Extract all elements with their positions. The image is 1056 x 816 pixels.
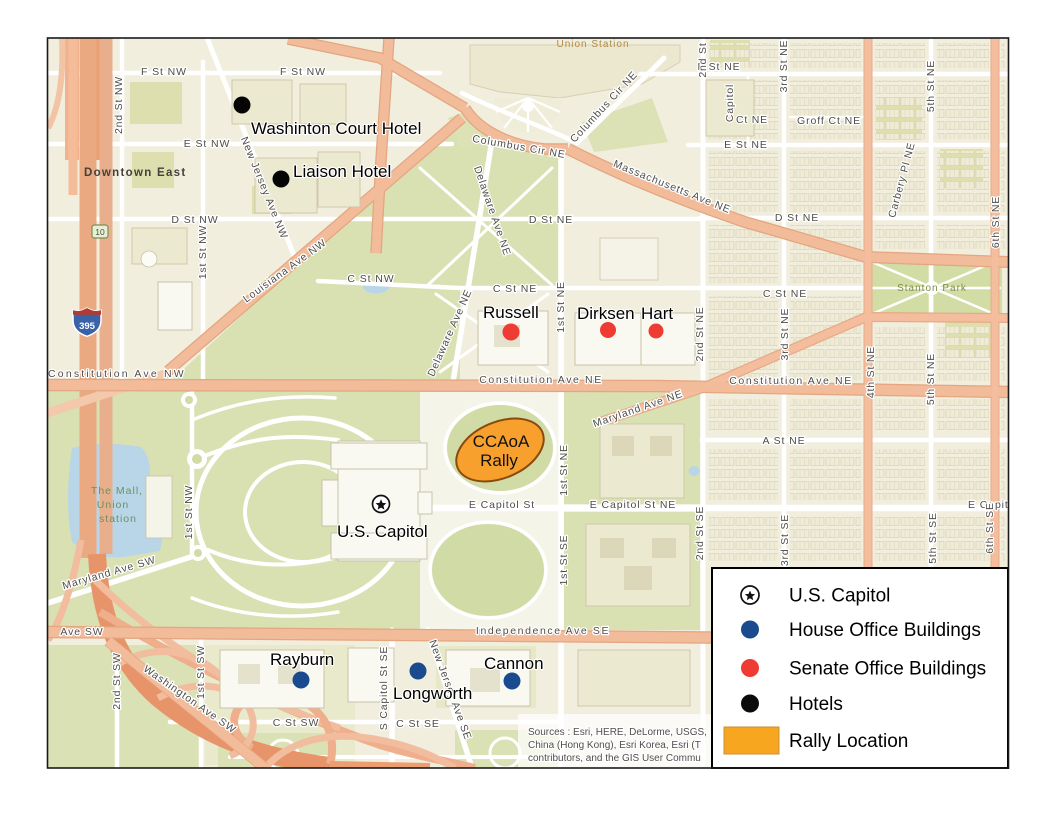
svg-text:1st St NE: 1st St NE (558, 444, 570, 496)
svg-text:10: 10 (95, 227, 105, 237)
svg-text:Washinton Court Hotel: Washinton Court Hotel (251, 119, 421, 138)
svg-text:Stanton Park: Stanton Park (897, 283, 967, 294)
svg-text:A St NE: A St NE (762, 435, 805, 447)
svg-text:2nd St NE: 2nd St NE (694, 306, 706, 361)
svg-text:C St SW: C St SW (273, 717, 320, 729)
svg-text:1st St NW: 1st St NW (183, 485, 195, 539)
svg-text:3rd St NE: 3rd St NE (778, 40, 790, 93)
svg-text:C St SE: C St SE (396, 718, 440, 730)
svg-text:2nd St NW: 2nd St NW (113, 76, 125, 134)
svg-text:Rally Location: Rally Location (789, 731, 908, 752)
svg-text:E St NW: E St NW (184, 138, 231, 150)
svg-text:Constitution Ave NE: Constitution Ave NE (729, 375, 853, 387)
svg-text:The Mall,: The Mall, (91, 485, 143, 497)
svg-text:Union: Union (97, 499, 129, 511)
svg-text:E St NE: E St NE (724, 139, 768, 151)
svg-text:D St NE: D St NE (529, 214, 573, 226)
svg-text:4th St NE: 4th St NE (865, 346, 877, 398)
svg-text:Ct NE: Ct NE (736, 114, 768, 126)
svg-text:5th St SE: 5th St SE (927, 512, 939, 564)
svg-text:Constitution Ave NW: Constitution Ave NW (48, 368, 186, 380)
svg-text:3rd St SE: 3rd St SE (779, 514, 791, 566)
svg-text:Longworth: Longworth (393, 684, 472, 703)
svg-text:Downtown East: Downtown East (84, 167, 187, 179)
svg-text:Liaison Hotel: Liaison Hotel (293, 162, 391, 181)
svg-text:E Capitol St: E Capitol St (469, 499, 535, 511)
svg-text:Union Station: Union Station (556, 39, 629, 50)
svg-text:1st St SW: 1st St SW (195, 645, 207, 699)
svg-text:2nd St SE: 2nd St SE (694, 506, 706, 560)
svg-text:395: 395 (79, 321, 96, 332)
svg-text:Dirksen: Dirksen (577, 304, 635, 323)
svg-text:Hotels: Hotels (789, 694, 843, 715)
svg-text:contributors, and the GIS User: contributors, and the GIS User Commu (528, 753, 701, 764)
svg-text:D St NW: D St NW (171, 214, 218, 226)
svg-text:C St NW: C St NW (347, 273, 394, 285)
svg-text:China (Hong Kong), Esri Korea,: China (Hong Kong), Esri Korea, Esri (T (528, 740, 701, 751)
svg-text:2nd St: 2nd St (697, 42, 709, 77)
svg-text:Capitol: Capitol (724, 84, 736, 122)
svg-text:2nd St SW: 2nd St SW (111, 652, 123, 709)
svg-text:5th St NE: 5th St NE (925, 353, 937, 405)
svg-text:F St NW: F St NW (141, 66, 187, 78)
svg-text:station: station (99, 513, 137, 525)
svg-text:House Office Buildings: House Office Buildings (789, 620, 981, 641)
svg-text:Sources : Esri, HERE, DeLorme,: Sources : Esri, HERE, DeLorme, USGS, (528, 727, 707, 738)
svg-text:1st St NW: 1st St NW (197, 225, 209, 279)
svg-text:6th St NE: 6th St NE (990, 196, 1002, 248)
svg-text:CCAoA: CCAoA (473, 432, 530, 451)
svg-text:Hart: Hart (641, 304, 673, 323)
svg-text:U.S. Capitol: U.S. Capitol (789, 586, 890, 607)
svg-text:1st St SE: 1st St SE (558, 535, 570, 586)
svg-text:Senate Office Buildings: Senate Office Buildings (789, 659, 986, 680)
svg-text:F St NW: F St NW (280, 66, 326, 78)
svg-text:Russell: Russell (483, 303, 539, 322)
svg-text:Rayburn: Rayburn (270, 650, 334, 669)
svg-text:3rd St NE: 3rd St NE (779, 308, 791, 361)
svg-text:Ave SW: Ave SW (60, 626, 103, 638)
svg-text:Cannon: Cannon (484, 654, 544, 673)
svg-text:C St NE: C St NE (493, 283, 537, 295)
svg-text:D St NE: D St NE (775, 212, 819, 224)
svg-text:Independence Ave SE: Independence Ave SE (476, 625, 610, 637)
svg-text:C St NE: C St NE (763, 288, 807, 300)
svg-text:Constitution Ave NE: Constitution Ave NE (479, 374, 603, 386)
svg-text:6th St SE: 6th St SE (984, 502, 996, 554)
svg-text:5th St NE: 5th St NE (925, 60, 937, 112)
svg-text:1st St NE: 1st St NE (555, 281, 567, 333)
svg-text:E Capitol St NE: E Capitol St NE (590, 499, 676, 511)
svg-text:Rally: Rally (480, 451, 518, 470)
svg-text:U.S. Capitol: U.S. Capitol (337, 522, 428, 541)
svg-text:S Capitol St SE: S Capitol St SE (378, 646, 390, 730)
svg-text:Groff Ct NE: Groff Ct NE (797, 115, 861, 127)
